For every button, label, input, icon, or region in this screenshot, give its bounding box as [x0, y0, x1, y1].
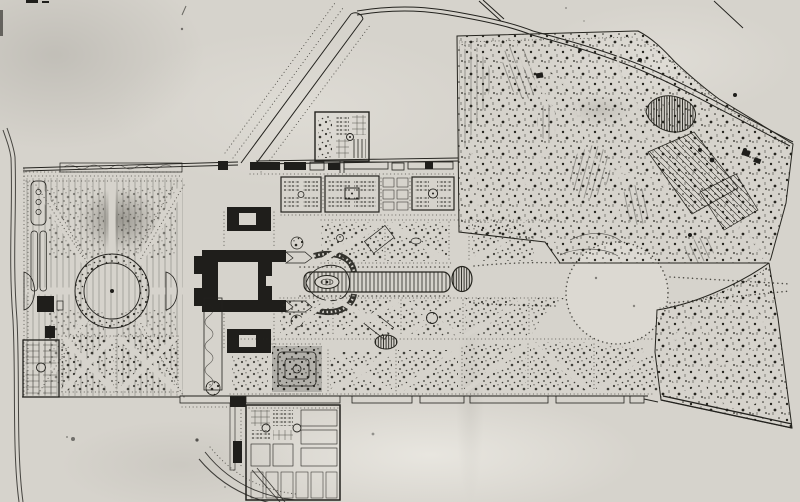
west-parterre-garden [22, 169, 184, 397]
chateau-building [194, 250, 286, 312]
round-bed [206, 381, 220, 395]
south-bosquets [62, 336, 178, 392]
dark-oval-basin [375, 335, 397, 349]
oval-basin [452, 267, 472, 292]
gate-building [233, 441, 242, 463]
scanned-garden-plan [0, 0, 800, 502]
plan-svg [0, 0, 800, 502]
labyrinth-bosquet [272, 344, 322, 394]
ink-smudge [80, 188, 156, 248]
inner-court [218, 262, 258, 300]
long-basin [304, 272, 450, 292]
